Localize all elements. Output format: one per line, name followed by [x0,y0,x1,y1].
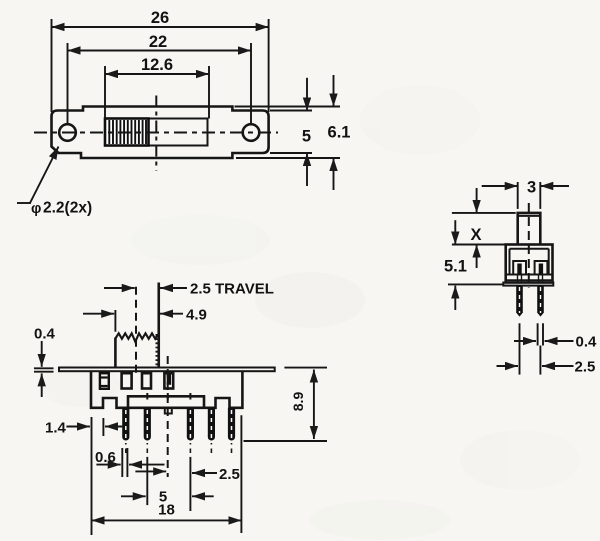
svg-text:8.9: 8.9 [290,392,306,412]
svg-text:0.4: 0.4 [576,334,598,351]
svg-text:0.6: 0.6 [95,449,116,466]
svg-text:22: 22 [149,33,167,51]
svg-text:18: 18 [158,502,175,519]
svg-text:0.4: 0.4 [34,326,56,343]
svg-text:1.4: 1.4 [45,420,67,437]
svg-text:5: 5 [302,128,311,146]
svg-text:3: 3 [527,179,536,197]
svg-text:2.5: 2.5 [575,359,596,376]
svg-text:5.1: 5.1 [444,258,467,276]
svg-text:X: X [471,226,482,244]
svg-text:2.5: 2.5 [219,466,240,483]
svg-text:6.1: 6.1 [328,124,351,142]
svg-text:26: 26 [151,9,169,27]
svg-text:2.2(2x): 2.2(2x) [43,200,92,217]
svg-text:4.9: 4.9 [186,307,207,324]
svg-text:φ: φ [31,201,41,217]
svg-text:2.5 TRAVEL: 2.5 TRAVEL [190,281,274,298]
svg-text:12.6: 12.6 [141,56,173,74]
